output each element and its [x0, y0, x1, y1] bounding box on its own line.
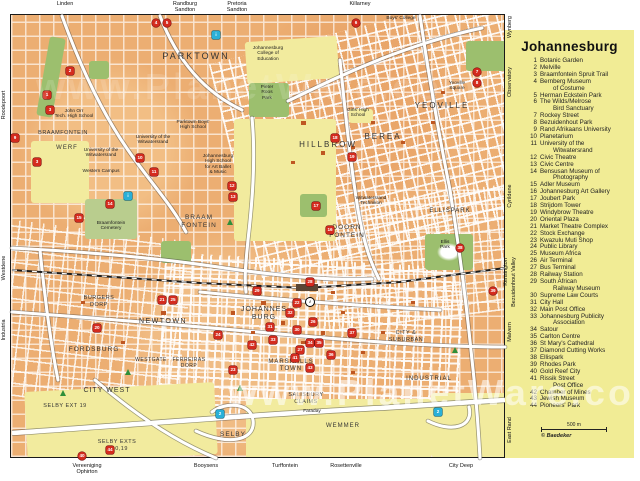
place-label-line: Tech. High School [55, 114, 94, 119]
legend-item: 11University of theWitwatersrand [527, 141, 611, 155]
edge-label-right: Wynberg [507, 16, 513, 38]
sight-marker-8: 8 [473, 79, 481, 87]
park-small-west [161, 241, 191, 263]
info-marker-icon: i [212, 31, 220, 39]
place-label-line: Witwatersrand [84, 153, 118, 158]
place-label-line: Park [261, 96, 274, 101]
district-label: SELBY [220, 431, 246, 439]
place-label: Western Campus [83, 169, 120, 174]
building-block [351, 371, 355, 374]
place-label-line: College of [253, 51, 283, 56]
legend-item-number: 44 [527, 403, 537, 410]
edge-label-right: Cyrildene [507, 184, 513, 207]
sight-marker-5: 5 [163, 19, 171, 27]
sight-marker-6: 6 [352, 19, 360, 27]
building-block [331, 291, 335, 294]
scale-bar: 500 m © Baedeker [541, 422, 607, 439]
district-label-line: FONTEIN [329, 232, 365, 240]
building-block [291, 161, 295, 164]
sight-marker-23: 23 [229, 366, 237, 374]
sight-marker-2: 2 [66, 67, 74, 75]
edge-label-left: Westdene [1, 256, 7, 281]
edge-label-right: Observatory [507, 67, 513, 97]
sight-marker-37: 37 [348, 329, 356, 337]
sight-marker-18: 18 [331, 134, 339, 142]
district-label-line: 5,10,19 [98, 446, 137, 453]
tree-symbol-icon [125, 369, 131, 375]
district-label-line: WERF [56, 145, 78, 152]
edge-label-line: Sandton [227, 7, 248, 13]
sight-marker-30: 30 [293, 326, 301, 334]
edge-label-left: Roodepoort [1, 91, 7, 120]
district-label-line: ELLISPARK [429, 208, 470, 215]
district-label-line: YEOVILLE [415, 101, 470, 110]
sight-marker-40: 40 [78, 452, 86, 460]
legend-item-label: Bensusan Museum ofPhotography [540, 169, 600, 183]
place-label-line: Cemetery [97, 226, 126, 231]
place-label: St. John'sBoys' College [386, 14, 415, 22]
district-label: SELBY EXT 19 [43, 403, 86, 410]
sight-marker-27: 27 [296, 346, 304, 354]
district-label-line: SALISBURY [288, 392, 323, 399]
area-wits-campus [234, 119, 336, 241]
place-label: WitwatersrandTechnikon [356, 196, 387, 207]
sight-marker-15: 15 [75, 214, 83, 222]
street-grid-doornfontein [314, 183, 505, 331]
place-label: Girls' HighSchool [347, 108, 369, 119]
info-marker-icon: i [124, 192, 132, 200]
place-label: JohannesburgCollege ofEducation [253, 46, 283, 62]
sight-marker-43: 43 [306, 364, 314, 372]
district-label-line: SELBY EXTS [98, 439, 137, 446]
place-label-line: Roos [261, 90, 274, 95]
building-block [431, 121, 435, 124]
district-label: WERF [56, 145, 78, 152]
edge-label-top: PretoriaSandton [227, 1, 248, 13]
district-label: YEOVILLE [415, 101, 470, 110]
district-label: BRAAMFONTEIN [181, 214, 217, 229]
sight-marker-13: 13 [229, 193, 237, 201]
edge-label-line: Rosettenville [330, 463, 362, 469]
sight-marker-3: 3 [46, 106, 54, 114]
building-block [321, 151, 325, 155]
building-block [261, 301, 266, 305]
legend-item: 6The Wilds/MelroseBird Sanctuary [527, 99, 611, 113]
district-label-line: BEREA [364, 132, 401, 141]
place-label: University of theWitwatersrand [84, 148, 118, 159]
place-label: Faraday [303, 409, 321, 414]
district-label-line: SELBY [220, 431, 246, 439]
district-label-line: PARKTOWN [162, 51, 229, 61]
legend-item-number: 4 [527, 79, 537, 93]
district-label-line: SELBY EXT 19 [43, 403, 86, 410]
edge-label-right: Bezuidenhout Valley [511, 257, 517, 307]
district-label-line: NEWTOWN [139, 318, 187, 326]
sight-marker-34: 34 [306, 339, 314, 347]
sight-marker-35: 35 [315, 339, 323, 347]
district-label: BURGERSDORP [84, 295, 115, 308]
building-block [401, 141, 405, 144]
place-label: University of theWitwatersrand [136, 135, 170, 146]
info-marker-icon: 2 [434, 408, 442, 416]
legend-item: 41Rissik StreetPost Office [527, 376, 611, 390]
district-label: PARKTOWN [162, 51, 229, 61]
building-block [251, 331, 255, 334]
district-label-line: CITY WEST [84, 387, 131, 395]
sight-marker-9: 9 [11, 134, 19, 142]
sight-marker-44: 44 [106, 446, 114, 454]
edge-label-bottom: VereenigingOphirton [72, 463, 101, 475]
building-block [121, 341, 125, 344]
legend-panel: Johannesburg 1Botanic Garden2Melville3Br… [505, 30, 634, 458]
district-label-line: BURG [241, 314, 287, 322]
tree-symbol-icon [237, 385, 243, 391]
district-label-line: DORP [84, 302, 115, 309]
info-circle-icon: i [306, 298, 314, 306]
sight-marker-28: 28 [306, 278, 314, 286]
place-label: BraamfonteinCemetery [97, 221, 126, 232]
scale-label: 500 m [541, 422, 607, 428]
sight-marker-11: 11 [150, 168, 158, 176]
place-label-line: Western Campus [83, 169, 120, 174]
building-block [161, 311, 166, 315]
district-label-line: DOORN [329, 224, 365, 232]
place-label-line: Park [440, 245, 450, 250]
sight-marker-32: 32 [286, 309, 294, 317]
edge-label-right: Malvern [507, 322, 513, 342]
edge-label-line: Turffontein [272, 463, 298, 469]
sight-marker-39: 39 [489, 287, 497, 295]
building-block [441, 91, 445, 94]
district-label: INDUSTRIAL [406, 376, 452, 383]
district-label-line: INDUSTRIAL [406, 376, 452, 383]
sight-marker-25: 25 [169, 296, 177, 304]
district-label-line: BURGERS [84, 295, 115, 302]
legend-item-number: 29 [527, 279, 537, 293]
building-block [301, 121, 306, 125]
place-label-line: High School [203, 159, 233, 164]
place-label-line: Education [253, 57, 283, 62]
district-label: BRAAMFONTEIN [38, 130, 88, 137]
legend-item: 33Johannesburg PublicityAssociation [527, 314, 611, 328]
place-label: EllisPark [440, 240, 450, 251]
sight-marker-36: 36 [327, 351, 335, 359]
district-label: HILLBROW [299, 140, 357, 149]
district-label-line: BRAAM [181, 214, 217, 222]
building-block [361, 351, 365, 354]
place-label-line: School [347, 113, 369, 118]
edge-label-line: Sandton [173, 7, 197, 13]
place-label-line: High School [177, 125, 210, 130]
sight-marker-1: 1 [43, 91, 51, 99]
legend-item-line: Pioneers' Park [540, 403, 580, 410]
district-label: WEMMER [326, 423, 360, 430]
district-label-line: FONTEIN [181, 222, 217, 230]
district-label-line: WESTGATE [135, 357, 167, 363]
place-label-line: Square [449, 86, 465, 91]
legend-item-label: South AfricanRailway Museum [540, 279, 600, 293]
place-label-line: & Music [203, 170, 233, 175]
district-label: SALISBURYCLAIMS [288, 392, 323, 405]
district-label: BEREA [364, 132, 401, 141]
building-block [231, 311, 235, 315]
sight-marker-41: 41 [291, 354, 299, 362]
district-label-line: BRAAMFONTEIN [38, 130, 88, 137]
info-marker-icon: 2 [216, 410, 224, 418]
district-label-line: FORDSBURG [69, 346, 120, 354]
legend-item-number: 14 [527, 169, 537, 183]
sight-marker-22: 22 [293, 299, 301, 307]
edge-label-bottom: Rosettenville [330, 463, 362, 469]
district-label: NEWTOWN [139, 318, 187, 326]
park-the-wilds [466, 41, 505, 71]
building-block [341, 311, 345, 314]
building-block [381, 331, 385, 334]
legend-item: 44Pioneers' Park [527, 403, 611, 410]
city-map: PARKTOWNBRAAMFONTEINWERFHILLBROWBEREAYEO… [10, 14, 505, 458]
district-label: FERREIRASDORP [172, 357, 205, 369]
scale-line [541, 429, 607, 430]
legend-title: Johannesburg [505, 39, 634, 54]
edge-label-top: RandburgSandton [173, 1, 197, 13]
building-block [321, 331, 325, 335]
district-label-line: CLAIMS [288, 399, 323, 406]
sight-marker-10: 10 [136, 154, 144, 162]
place-label-line: Witwatersrand [136, 140, 170, 145]
district-label-line: DORP [172, 363, 205, 369]
district-label-line: HILLBROW [299, 140, 357, 149]
district-label: FORDSBURG [69, 346, 120, 354]
sight-marker-4: 4 [152, 19, 160, 27]
tree-symbol-icon [60, 390, 66, 396]
district-label-line: SUBURBAN [389, 337, 424, 344]
district-label: WESTGATE [135, 357, 167, 363]
district-label-line: WEMMER [326, 423, 360, 430]
sight-marker-21: 21 [158, 296, 166, 304]
legend-list: 1Botanic Garden2Melville3Braamfontein Sp… [527, 58, 611, 410]
sight-marker-7: 7 [473, 68, 481, 76]
legend-item-number: 6 [527, 99, 537, 113]
place-label-line: Boys' College [386, 16, 415, 21]
district-label: SELBY EXTS5,10,19 [98, 439, 137, 452]
district-label: JOHANNESBURG [241, 306, 287, 322]
sight-marker-24: 24 [214, 331, 222, 339]
district-label: DOORNFONTEIN [329, 224, 365, 239]
sight-marker-20: 20 [93, 324, 101, 332]
edge-label-bottom: City Deep [449, 463, 473, 469]
legend-item-label: The Wilds/MelroseBird Sanctuary [540, 99, 594, 113]
district-label-line: JOHANNES [241, 306, 287, 314]
legend-item-number: 11 [527, 141, 537, 155]
legend-item: 14Bensusan Museum ofPhotography [527, 169, 611, 183]
edge-label-top: Killarney [349, 1, 370, 7]
sight-marker-17: 17 [312, 202, 320, 210]
legend-item-label: Pioneers' Park [540, 403, 580, 410]
sight-marker-12: 12 [228, 182, 236, 190]
johannesburg-map-page: PARKTOWNBRAAMFONTEINWERFHILLBROWBEREAYEO… [0, 0, 640, 481]
legend-item-label: University of theWitwatersrand [540, 141, 593, 155]
edge-label-line: Ophirton [72, 469, 101, 475]
copyright-baedeker: © Baedeker [541, 433, 607, 439]
edge-label-line: Booysens [194, 463, 218, 469]
edge-label-bottom: Booysens [194, 463, 218, 469]
place-label-line: Technikon [356, 201, 387, 206]
area-southeast [431, 393, 505, 457]
sight-marker-3: 3 [33, 158, 41, 166]
sight-marker-38: 38 [456, 244, 464, 252]
legend-item-number: 41 [527, 376, 537, 390]
place-label-line: Faraday [303, 409, 321, 414]
legend-item: 29South AfricanRailway Museum [527, 279, 611, 293]
legend-item-number: 33 [527, 314, 537, 328]
legend-item-label: Rissik StreetPost Office [540, 376, 583, 390]
edge-label-right: East Rand [507, 417, 513, 443]
district-label: ELLISPARK [429, 208, 470, 215]
edge-label-bottom: Turffontein [272, 463, 298, 469]
sight-marker-42: 42 [248, 341, 256, 349]
park-melville-green [89, 61, 109, 79]
legend-item-label: Bernberg Museumof Costume [540, 79, 591, 93]
sight-marker-19: 19 [348, 153, 356, 161]
sight-marker-31: 31 [266, 323, 274, 331]
place-label: Parktown Boys'High School [177, 120, 210, 131]
district-label: CITY WEST [84, 387, 131, 395]
building-block [411, 301, 415, 304]
place-label: YeovilleSquare [449, 81, 465, 92]
legend-item-line: Association [553, 320, 604, 327]
sight-marker-14: 14 [106, 200, 114, 208]
edge-label-line: City Deep [449, 463, 473, 469]
edge-label-top: Linden [57, 1, 74, 7]
tree-symbol-icon [452, 347, 458, 353]
edge-label-left: Industria [1, 319, 7, 340]
edge-label-line: Linden [57, 1, 74, 7]
tree-symbol-icon [227, 219, 233, 225]
sight-marker-16: 16 [326, 226, 334, 234]
district-label: CITY &SUBURBAN [389, 330, 424, 343]
edge-label-right: Kensington [503, 258, 509, 286]
building-block [371, 121, 375, 124]
place-label: John OrrTech. High School [55, 109, 94, 120]
sight-marker-29: 29 [253, 287, 261, 295]
place-label: PieterRoosPark [261, 85, 274, 101]
place-label: JohannesburgHigh Schoolfor Art Ballet& M… [203, 154, 233, 175]
sight-marker-26: 26 [309, 318, 317, 326]
edge-label-line: Killarney [349, 1, 370, 7]
legend-item: 4Bernberg Museumof Costume [527, 79, 611, 93]
legend-item-label: Johannesburg PublicityAssociation [540, 314, 604, 328]
sight-marker-33: 33 [269, 336, 277, 344]
